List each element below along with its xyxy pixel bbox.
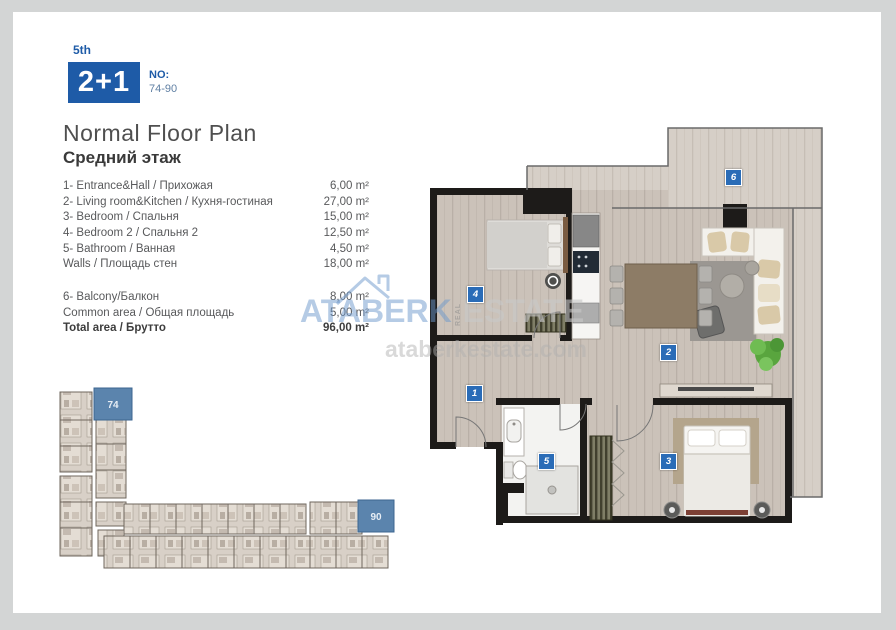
room-label: 3- Bedroom / Спальня [63,211,179,227]
room-row: 1- Entrance&Hall / Прихожая 6,00 m² [63,180,369,196]
room-label: 6- Balcony/Балкон [63,291,159,307]
highlighted-unit-90: 90 [358,500,394,532]
floor-plan: 1 2 3 4 5 6 [420,106,890,578]
room-list-extras: 6- Balcony/Балкон 8,00 m² Common area / … [63,291,369,338]
room-row: Walls / Площадь стен 18,00 m² [63,258,369,274]
room-label: 4- Bedroom 2 / Спальня 2 [63,227,198,243]
building-overview-plan: 74 90 [58,384,398,582]
unit-90-number: 90 [370,512,382,523]
room-marker-5: 5 [538,453,555,470]
room-row: 4- Bedroom 2 / Спальня 2 12,50 m² [63,227,369,243]
floor-plan-drawing [420,106,890,578]
room-label: Common area / Общая площадь [63,307,234,323]
unit-no-label: NO: [149,69,169,81]
room-area: 27,00 m² [324,196,369,212]
room-marker-4: 4 [467,286,484,303]
unit-no-range: 74-90 [149,83,177,95]
floor-label: 5th [73,43,91,57]
room-row: 2- Living room&Kitchen / Кухня-гостиная … [63,196,369,212]
total-area: 96,00 m² [323,322,369,338]
page-title-ru: Средний этаж [63,148,181,168]
flyer-page: 5th 2+1 NO: 74-90 Normal Floor Plan Сред… [13,12,881,613]
room-marker-6: 6 [725,169,742,186]
highlighted-unit-74: 74 [94,388,132,420]
room-row: 5- Bathroom / Ванная 4,50 m² [63,243,369,259]
room-label: Walls / Площадь стен [63,258,177,274]
room-area: 6,00 m² [330,180,369,196]
room-area: 12,50 m² [324,227,369,243]
unit-74-number: 74 [107,400,119,411]
room-marker-3: 3 [660,453,677,470]
room-label: 5- Bathroom / Ванная [63,243,175,259]
page-title: Normal Floor Plan [63,120,257,147]
room-row: Common area / Общая площадь 5,00 m² [63,307,369,323]
room-label: 2- Living room&Kitchen / Кухня-гостиная [63,196,273,212]
total-label: Total area / Брутто [63,322,166,338]
kitchen-counter [572,213,600,339]
room-row: 6- Balcony/Балкон 8,00 m² [63,291,369,307]
room-list: 1- Entrance&Hall / Прихожая 6,00 m² 2- L… [63,180,369,274]
room-area: 8,00 m² [330,291,369,307]
room-label: 1- Entrance&Hall / Прихожая [63,180,213,196]
room-area: 15,00 m² [324,211,369,227]
balcony-floor-left [527,166,668,190]
total-row: Total area / Брутто 96,00 m² [63,322,369,338]
room-area: 5,00 m² [330,307,369,323]
unit-type-badge: 2+1 [68,62,140,103]
page-background: { "header": { "floor": "5th", "unit_type… [0,0,896,630]
room-area: 18,00 m² [324,258,369,274]
room-marker-2: 2 [660,344,677,361]
unit-type-text: 2+1 [78,66,130,99]
room-area: 4,50 m² [330,243,369,259]
room-marker-1: 1 [466,385,483,402]
room-row: 3- Bedroom / Спальня 15,00 m² [63,211,369,227]
